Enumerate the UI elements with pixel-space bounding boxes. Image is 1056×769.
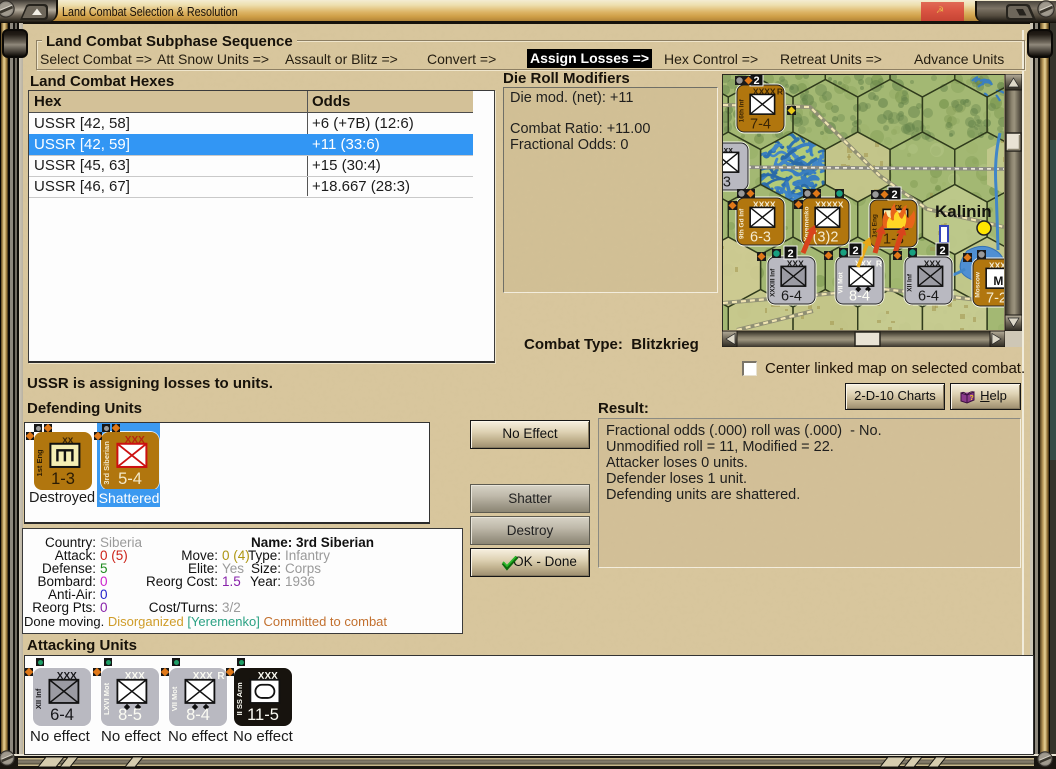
svg-text:6-4: 6-4 — [50, 706, 74, 724]
svg-text:XII Inf: XII Inf — [907, 273, 914, 292]
svg-text:-3: -3 — [722, 175, 731, 191]
svg-text:Moscow: Moscow — [975, 271, 982, 298]
svg-text:VII Mot: VII Mot — [838, 271, 845, 293]
svg-text:9th Gd Inf: 9th Gd Inf — [739, 208, 746, 239]
svg-text:1st Eng: 1st Eng — [35, 449, 44, 477]
svg-text:2: 2 — [939, 245, 945, 257]
svg-text:?: ? — [970, 395, 974, 402]
svg-text:2: 2 — [891, 189, 897, 201]
svg-text:7-2: 7-2 — [986, 291, 1007, 307]
svg-text:8-4: 8-4 — [186, 706, 210, 724]
svg-text:8-5: 8-5 — [118, 706, 142, 724]
svg-text:LXVI Mot: LXVI Mot — [102, 682, 111, 715]
svg-text:XII Inf: XII Inf — [34, 688, 43, 709]
svg-text:5-4: 5-4 — [118, 470, 142, 488]
svg-text:1-3: 1-3 — [51, 470, 75, 488]
svg-text:R: R — [217, 671, 225, 682]
svg-text:VII Mot: VII Mot — [170, 686, 179, 711]
svg-text:II SS Arm: II SS Arm — [235, 682, 244, 715]
svg-text:XXXIII Inf: XXXIII Inf — [770, 268, 777, 297]
svg-text:Kalinin: Kalinin — [935, 202, 992, 221]
svg-text:6-3: 6-3 — [750, 230, 771, 246]
svg-text:R: R — [876, 259, 882, 269]
svg-text:2: 2 — [852, 245, 858, 257]
svg-text:8-4: 8-4 — [849, 289, 870, 305]
svg-text:6-4: 6-4 — [918, 289, 939, 305]
svg-text:2: 2 — [787, 248, 793, 260]
svg-text:R: R — [777, 87, 783, 97]
svg-text:M: M — [993, 274, 1003, 288]
svg-text:3rd Siberian: 3rd Siberian — [102, 441, 111, 485]
svg-text:6-4: 6-4 — [781, 289, 802, 305]
svg-text:11-5: 11-5 — [247, 706, 279, 724]
svg-text:7-4: 7-4 — [750, 117, 771, 133]
svg-text:1st Eng: 1st Eng — [872, 214, 879, 238]
svg-text:2: 2 — [753, 75, 759, 87]
svg-text:16th Inf: 16th Inf — [739, 98, 746, 122]
svg-text:(3)2: (3)2 — [813, 230, 839, 246]
